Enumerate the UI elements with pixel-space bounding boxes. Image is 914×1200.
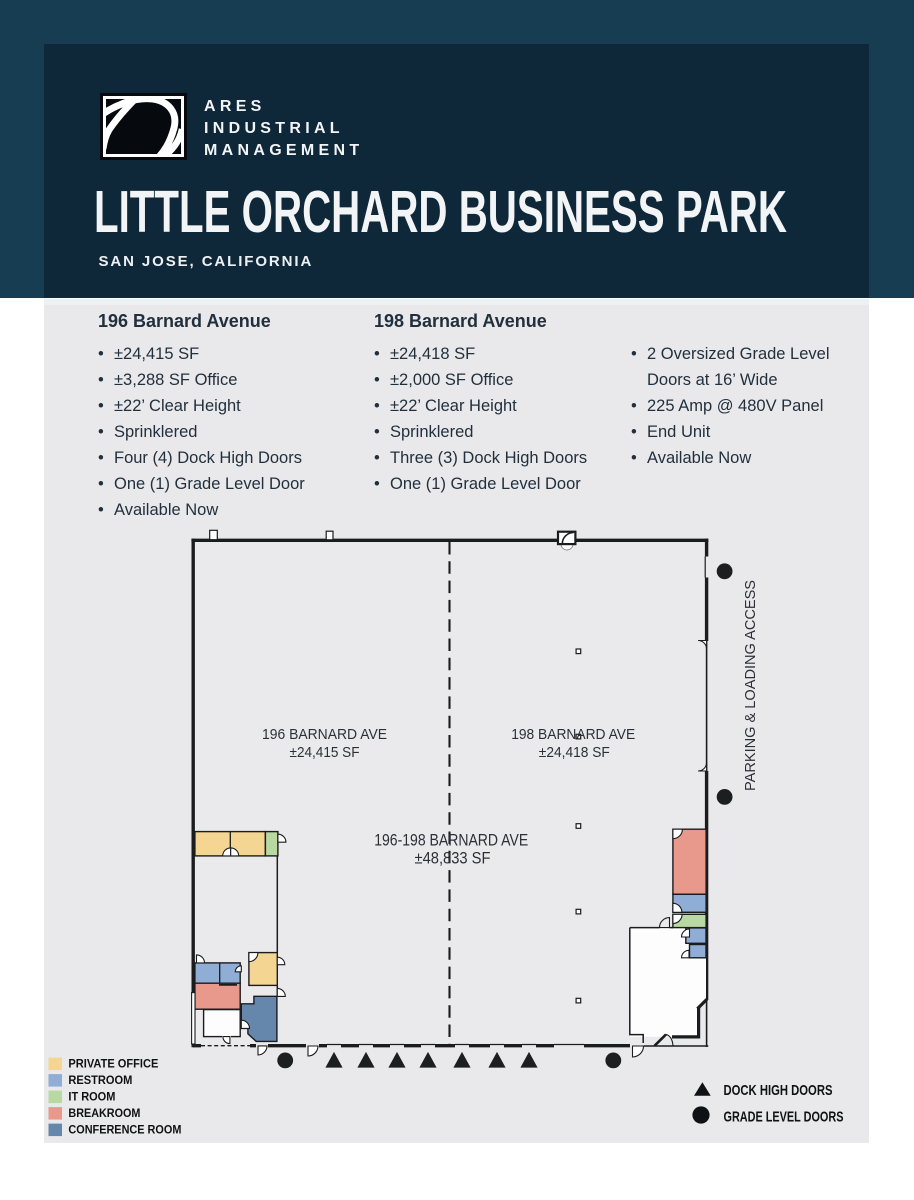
svg-text:±24,418 SF: ±24,418 SF	[539, 744, 610, 761]
svg-text:196-198 BARNARD AVE: 196-198 BARNARD AVE	[374, 832, 528, 850]
svg-text:IT ROOM: IT ROOM	[68, 1092, 115, 1104]
svg-text:198 BARNARD AVE: 198 BARNARD AVE	[511, 726, 635, 743]
svg-text:196 BARNARD AVE: 196 BARNARD AVE	[262, 726, 387, 743]
svg-text:DOCK HIGH DOORS: DOCK HIGH DOORS	[724, 1082, 833, 1099]
svg-text:CONFERENCE ROOM: CONFERENCE ROOM	[68, 1125, 181, 1137]
svg-text:BREAKROOM: BREAKROOM	[68, 1108, 140, 1120]
svg-text:RESTROOM: RESTROOM	[68, 1075, 132, 1087]
svg-text:GRADE LEVEL DOORS: GRADE LEVEL DOORS	[724, 1109, 844, 1126]
svg-text:±24,415 SF: ±24,415 SF	[290, 744, 360, 761]
svg-text:PRIVATE OFFICE: PRIVATE OFFICE	[68, 1059, 158, 1071]
svg-text:±48,833 SF: ±48,833 SF	[415, 849, 491, 867]
svg-text:PARKING & LOADING ACCESS: PARKING & LOADING ACCESS	[742, 580, 759, 791]
